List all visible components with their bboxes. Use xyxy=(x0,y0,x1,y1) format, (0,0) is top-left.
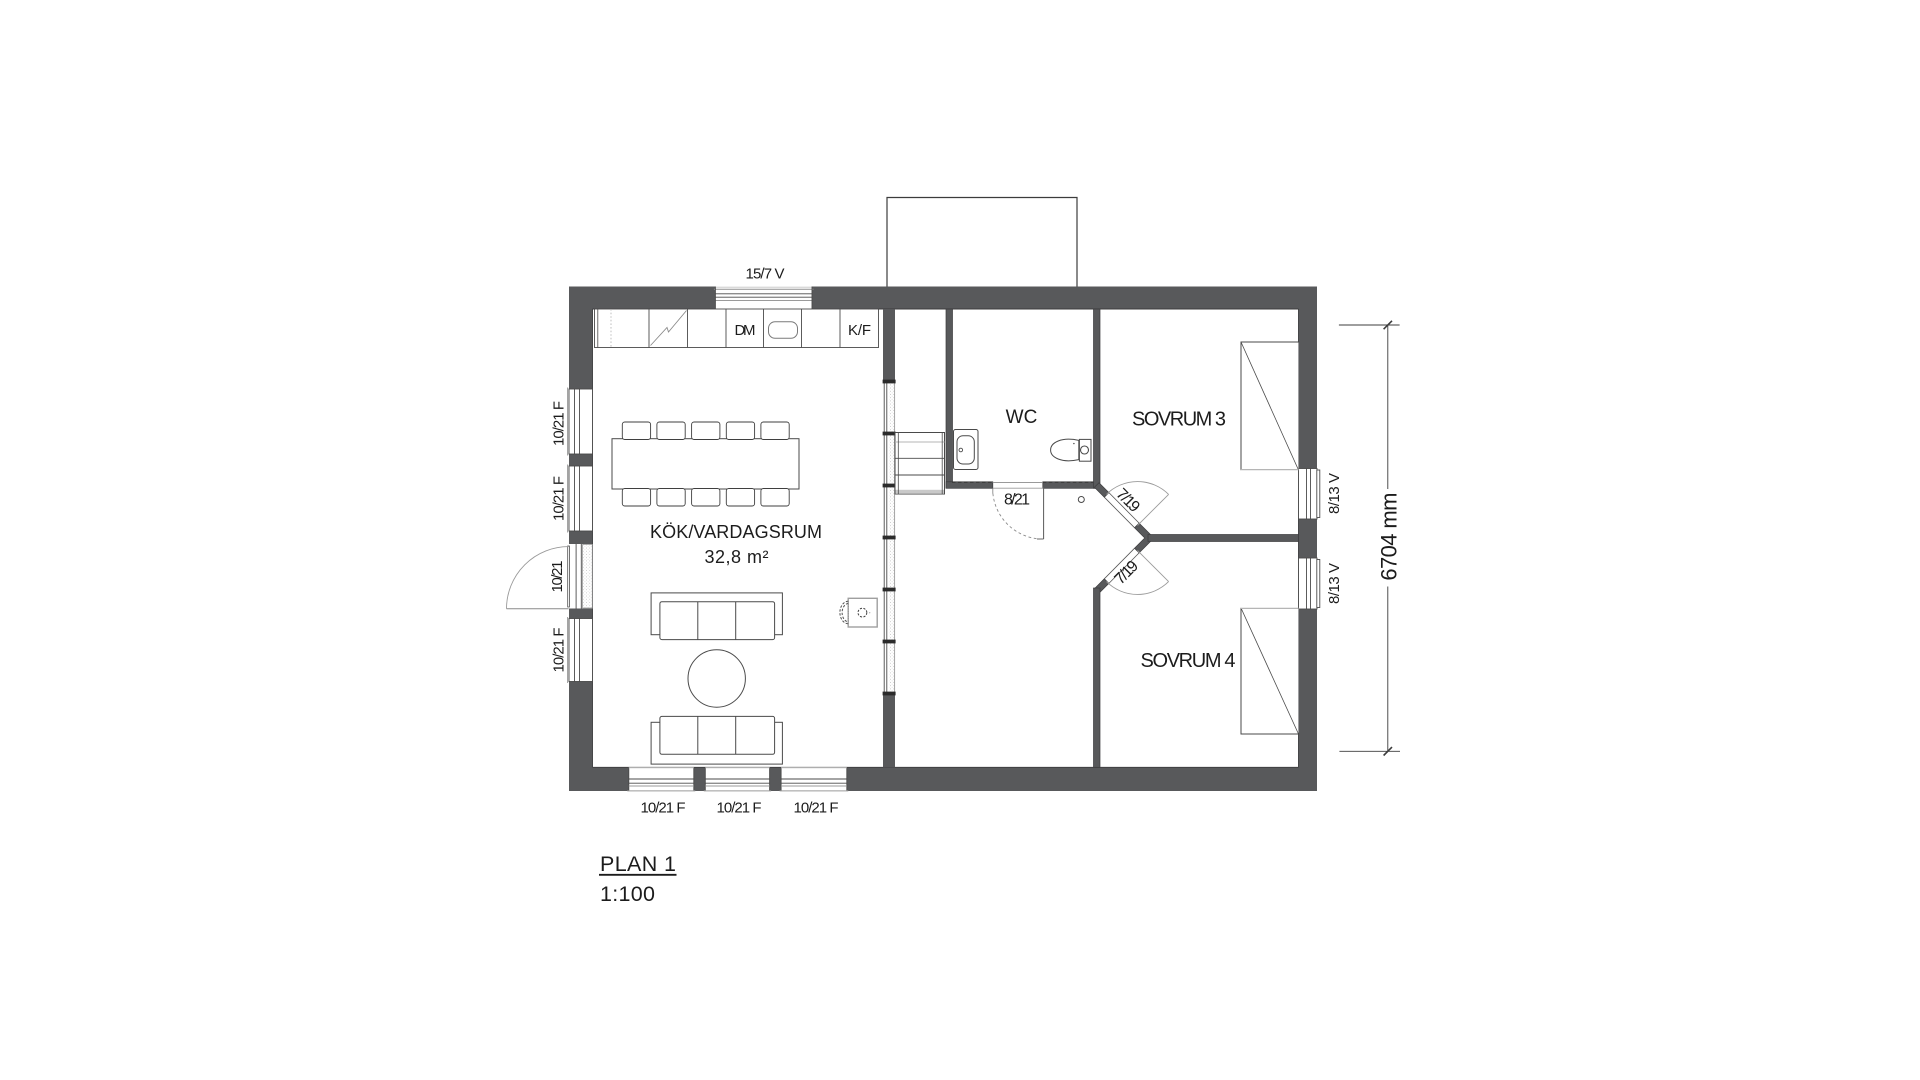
svg-text:SOVRUM 3: SOVRUM 3 xyxy=(1132,409,1226,431)
svg-text:8/21: 8/21 xyxy=(1004,492,1030,509)
svg-text:10/21: 10/21 xyxy=(549,561,566,593)
svg-text:8/13 V: 8/13 V xyxy=(1326,473,1343,514)
svg-text:PLAN 1: PLAN 1 xyxy=(600,852,676,876)
svg-text:KÖK/VARDAGSRUM: KÖK/VARDAGSRUM xyxy=(650,522,822,542)
svg-text:SOVRUM 4: SOVRUM 4 xyxy=(1141,650,1236,672)
svg-text:10/21 F: 10/21 F xyxy=(550,401,567,446)
svg-text:10/21 F: 10/21 F xyxy=(550,628,567,673)
svg-text:32,8 m²: 32,8 m² xyxy=(705,547,769,567)
svg-text:10/21 F: 10/21 F xyxy=(717,800,762,817)
svg-text:15/7 V: 15/7 V xyxy=(746,266,785,283)
svg-text:6704 mm: 6704 mm xyxy=(1377,493,1402,581)
svg-text:8/13 V: 8/13 V xyxy=(1326,563,1343,604)
svg-text:10/21 F: 10/21 F xyxy=(550,476,567,521)
svg-text:K/F: K/F xyxy=(848,322,871,339)
svg-text:10/21 F: 10/21 F xyxy=(794,800,839,817)
svg-text:DM: DM xyxy=(735,322,756,339)
svg-text:10/21 F: 10/21 F xyxy=(641,800,686,817)
svg-text:1:100: 1:100 xyxy=(600,882,655,906)
svg-text:WC: WC xyxy=(1006,407,1038,428)
